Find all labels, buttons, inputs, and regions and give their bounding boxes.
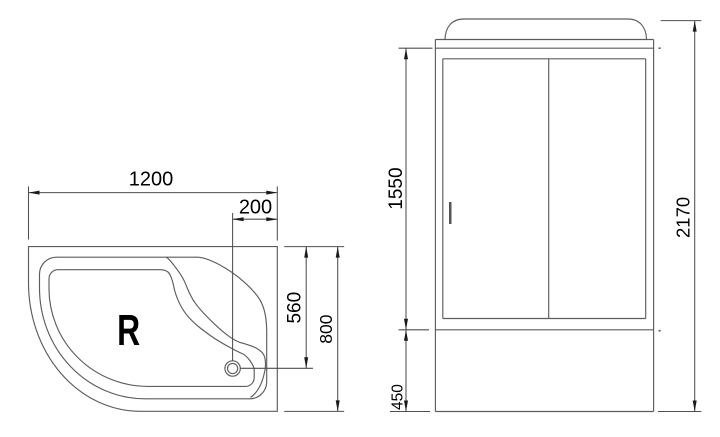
svg-text:2170: 2170 <box>673 197 694 238</box>
svg-text:450: 450 <box>389 384 406 410</box>
svg-text:560: 560 <box>284 292 305 324</box>
svg-text:800: 800 <box>316 314 336 343</box>
svg-text:1200: 1200 <box>129 168 174 190</box>
svg-text:1550: 1550 <box>386 167 407 209</box>
svg-text:200: 200 <box>239 196 272 218</box>
svg-text:R: R <box>117 306 140 355</box>
